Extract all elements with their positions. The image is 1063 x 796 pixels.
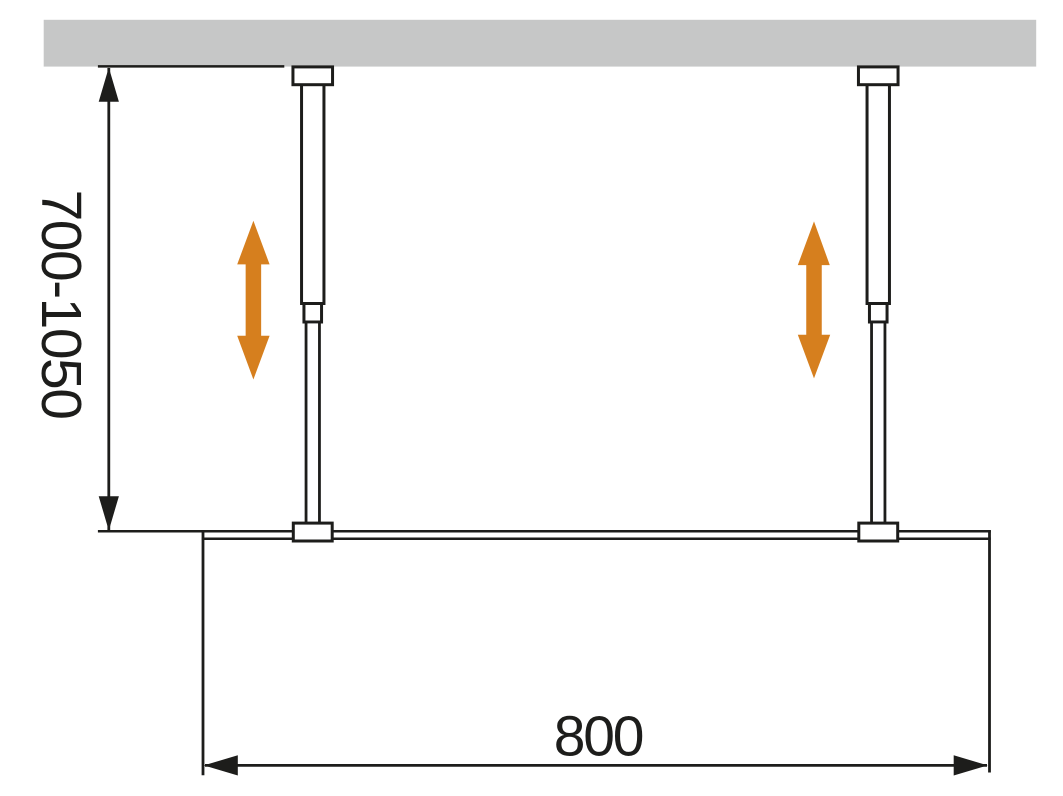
svg-text:800: 800	[554, 705, 643, 769]
svg-text:700-1050: 700-1050	[29, 190, 93, 419]
